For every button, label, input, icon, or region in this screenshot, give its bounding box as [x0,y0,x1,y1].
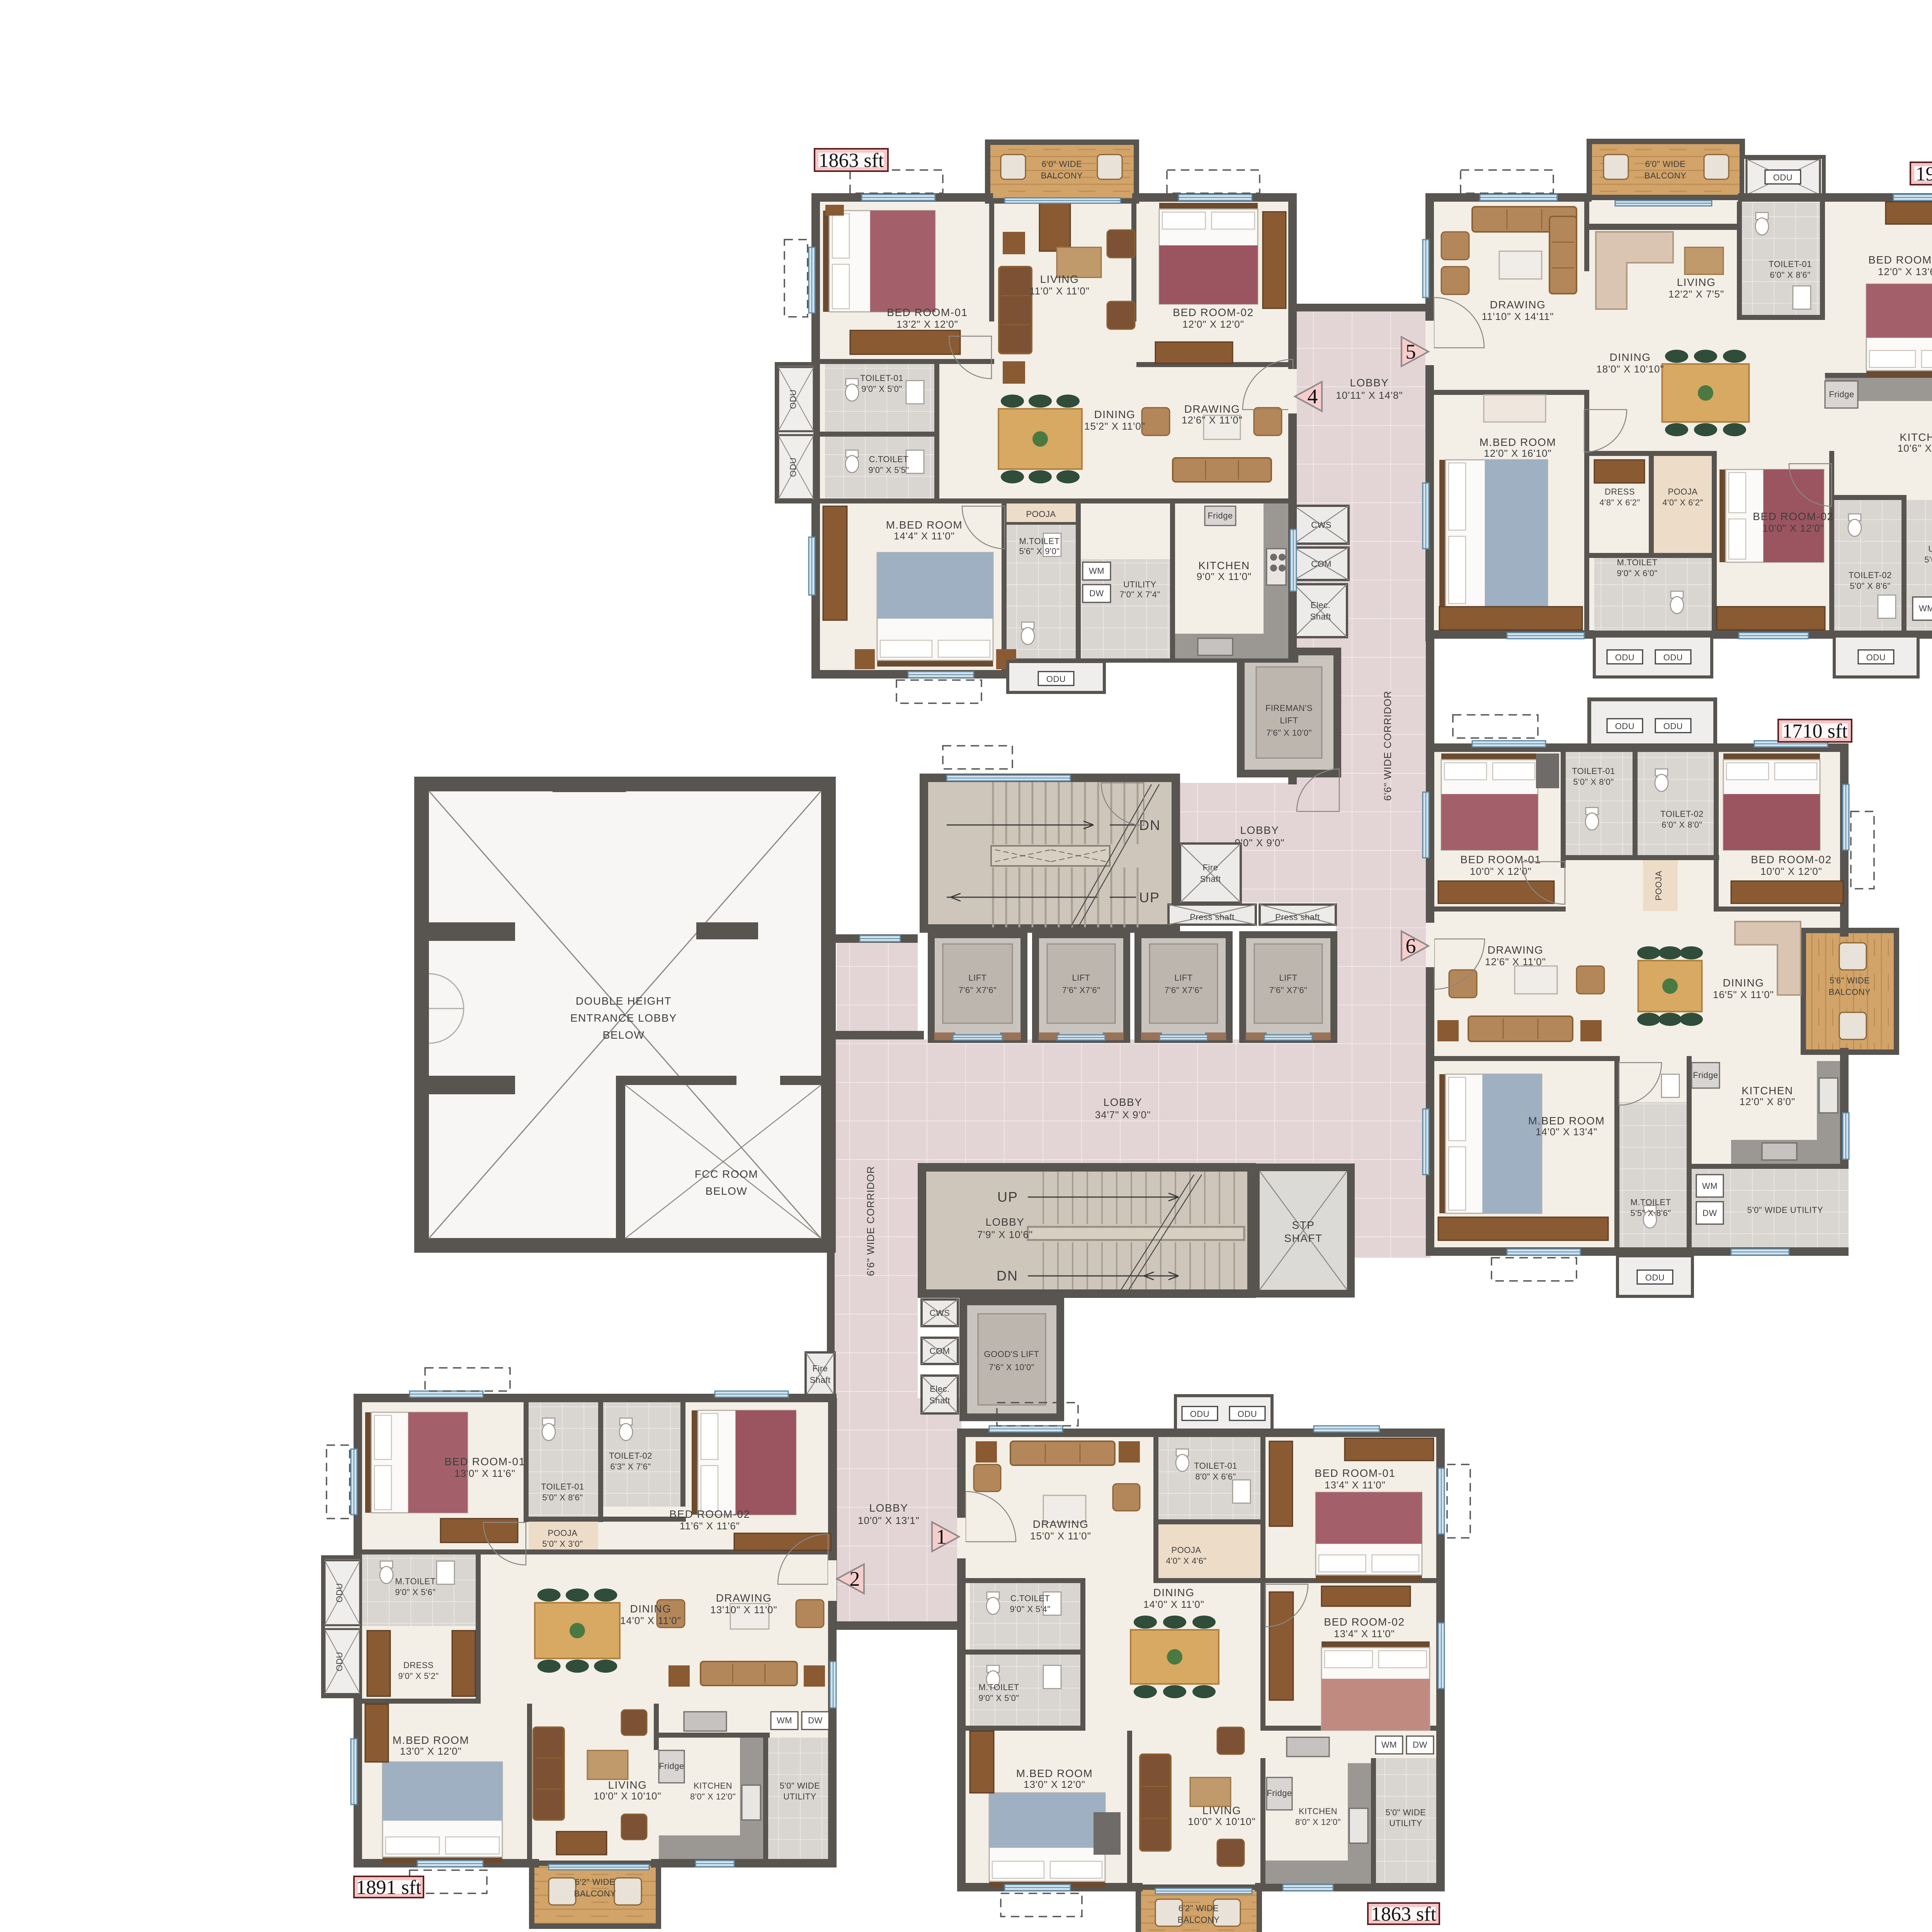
svg-text:LIVING: LIVING [1202,1804,1242,1816]
svg-text:CWS: CWS [930,1308,950,1318]
svg-text:LIVING: LIVING [1040,273,1079,285]
svg-text:M.BED ROOM: M.BED ROOM [886,519,963,531]
svg-text:6'2" WIDE: 6'2" WIDE [1179,1903,1219,1913]
svg-text:POOJA: POOJA [548,1528,577,1538]
svg-text:Fridge: Fridge [1207,511,1233,520]
svg-text:ODU: ODU [1866,653,1886,662]
svg-text:BALCONY: BALCONY [1829,987,1871,997]
svg-text:9'0" X 5'4": 9'0" X 5'4" [1010,1604,1050,1614]
svg-text:M.BED ROOM: M.BED ROOM [1016,1767,1093,1779]
svg-text:18'0" X 10'10": 18'0" X 10'10" [1596,363,1664,375]
svg-text:UTILITY: UTILITY [1389,1818,1422,1828]
svg-text:5'0" WIDE: 5'0" WIDE [1386,1808,1426,1817]
svg-text:DRESS: DRESS [1605,487,1635,497]
svg-text:13'4" X 11'0": 13'4" X 11'0" [1334,1628,1395,1639]
svg-text:BED ROOM-01: BED ROOM-01 [887,306,968,318]
svg-text:ODU: ODU [1663,721,1683,731]
svg-text:M.BED ROOM: M.BED ROOM [393,1734,469,1746]
svg-text:6'3" X 7'6": 6'3" X 7'6" [610,1462,651,1471]
svg-text:5: 5 [1406,340,1416,363]
svg-text:ODU: ODU [1645,1273,1665,1282]
svg-text:Fridge: Fridge [1267,1788,1292,1798]
svg-text:LOBBY: LOBBY [986,1216,1025,1228]
svg-text:BED ROOM-02: BED ROOM-02 [1751,854,1832,866]
svg-text:11'0" X 11'0": 11'0" X 11'0" [1029,285,1090,297]
svg-text:4'0" X 6'2": 4'0" X 6'2" [1662,498,1703,507]
svg-text:DW: DW [1702,1208,1717,1218]
svg-text:DRAWING: DRAWING [1488,944,1544,956]
svg-text:DRAWING: DRAWING [1490,299,1546,311]
svg-text:BELOW: BELOW [603,1029,645,1041]
svg-text:LIFT: LIFT [1279,973,1297,983]
svg-text:1891 sft: 1891 sft [356,1877,422,1899]
svg-text:DRESS: DRESS [403,1660,434,1670]
svg-text:13'0" X 11'6": 13'0" X 11'6" [454,1468,515,1479]
svg-text:BALCONY: BALCONY [1645,171,1687,180]
svg-text:Fridge: Fridge [1693,1070,1718,1080]
svg-text:Press shaft: Press shaft [1275,912,1320,922]
svg-text:6'0" X 8'6": 6'0" X 8'6" [1770,270,1810,280]
svg-text:ODU: ODU [335,1583,344,1602]
svg-text:6'2" WIDE: 6'2" WIDE [575,1877,616,1887]
svg-text:ODU: ODU [1663,653,1683,662]
svg-text:10'11" X 14'8": 10'11" X 14'8" [1336,389,1403,401]
svg-text:4: 4 [1308,385,1318,408]
svg-text:4'0" X 4'6": 4'0" X 4'6" [1166,1556,1206,1566]
svg-text:BED ROOM-02: BED ROOM-02 [1324,1616,1405,1628]
svg-text:15'0" X 11'0": 15'0" X 11'0" [1030,1530,1091,1542]
svg-text:UTILITY: UTILITY [1928,544,1932,554]
svg-text:14'0" X 11'0": 14'0" X 11'0" [620,1615,681,1626]
svg-text:9'0" X 5'0": 9'0" X 5'0" [861,384,902,394]
svg-text:UP: UP [1139,889,1160,905]
svg-text:11'10" X 14'11": 11'10" X 14'11" [1482,311,1554,322]
svg-text:DINING: DINING [1094,408,1136,420]
svg-text:Elec.: Elec. [1311,600,1330,610]
svg-text:11'6" X 11'6": 11'6" X 11'6" [680,1520,740,1532]
svg-text:LIVING: LIVING [1677,276,1716,288]
svg-text:5'0" WIDE: 5'0" WIDE [780,1781,820,1791]
svg-text:5'6" X 9'0": 5'6" X 9'0" [1019,546,1060,556]
svg-text:12'2" X 7'5": 12'2" X 7'5" [1668,288,1724,300]
svg-text:12'6" X 11'0": 12'6" X 11'0" [1485,956,1546,968]
svg-text:1990 sft: 1990 sft [1916,163,1932,185]
svg-text:6'0" WIDE: 6'0" WIDE [1645,159,1686,169]
svg-text:1: 1 [936,1525,947,1548]
svg-text:13'0" X 12'0": 13'0" X 12'0" [400,1745,462,1757]
svg-text:6: 6 [1406,934,1416,957]
svg-text:TOILET-01: TOILET-01 [860,373,903,383]
svg-text:10'0" X 12'0": 10'0" X 12'0" [1762,522,1824,534]
svg-text:7'6" X7'6": 7'6" X7'6" [959,985,997,995]
svg-text:10'0" X 13'1": 10'0" X 13'1" [858,1515,920,1526]
svg-text:TOILET-01: TOILET-01 [1572,766,1615,776]
svg-text:9'0" X 5'2": 9'0" X 5'2" [398,1671,439,1681]
svg-text:9'0" X 6'0": 9'0" X 6'0" [1617,568,1657,578]
svg-text:UTILITY: UTILITY [783,1792,816,1801]
svg-text:9'0" X 5'0": 9'0" X 5'0" [978,1693,1019,1703]
svg-text:KITCHEN: KITCHEN [1742,1085,1793,1097]
svg-text:M.TOILET: M.TOILET [978,1682,1019,1692]
svg-text:ENTRANCE LOBBY: ENTRANCE LOBBY [570,1012,677,1024]
svg-text:DOUBLE HEIGHT: DOUBLE HEIGHT [576,995,672,1007]
svg-text:POOJA: POOJA [1668,487,1697,497]
svg-text:C.TOILET: C.TOILET [869,454,909,464]
svg-text:BED ROOM-01: BED ROOM-01 [1460,854,1541,866]
svg-text:ODU: ODU [788,457,798,477]
svg-text:Shaft: Shaft [1310,612,1331,622]
svg-text:Shaft: Shaft [1200,874,1221,884]
svg-text:FIREMAN'S: FIREMAN'S [1265,703,1313,713]
svg-text:WM: WM [1089,566,1104,576]
svg-text:WM: WM [1381,1740,1397,1750]
svg-text:Fridge: Fridge [659,1761,684,1771]
svg-text:9'0" X 5'6": 9'0" X 5'6" [395,1587,435,1597]
svg-text:13'2" X 12'0": 13'2" X 12'0" [896,318,958,330]
svg-text:9'0" X 5'5": 9'0" X 5'5" [868,465,909,475]
svg-text:34'7" X 9'0": 34'7" X 9'0" [1095,1109,1151,1121]
svg-text:8'0" X 12'0": 8'0" X 12'0" [1295,1817,1341,1827]
svg-text:Shaft: Shaft [929,1396,950,1405]
svg-text:SHAFT: SHAFT [1284,1232,1322,1244]
svg-text:KITCHEN: KITCHEN [1299,1806,1337,1816]
svg-text:DINING: DINING [630,1603,672,1615]
svg-text:10'6" X 9'4": 10'6" X 9'4" [1898,442,1932,454]
svg-text:KITCHEN: KITCHEN [1900,431,1932,443]
svg-text:7'0" X 7'4": 7'0" X 7'4" [1119,590,1160,599]
svg-text:UTILITY: UTILITY [1123,580,1156,589]
svg-text:POOJA: POOJA [1171,1545,1201,1555]
svg-text:BED ROOM-01: BED ROOM-01 [1315,1467,1395,1479]
svg-text:TOILET-01: TOILET-01 [1769,259,1812,269]
svg-text:DW: DW [1089,588,1104,598]
svg-text:LIFT: LIFT [1174,973,1192,983]
svg-text:12'0" X 13'6": 12'0" X 13'6" [1878,266,1932,277]
svg-text:BALCONY: BALCONY [574,1889,616,1898]
svg-text:ODU: ODU [788,389,798,409]
svg-text:DW: DW [1413,1740,1427,1750]
svg-text:DN: DN [997,1268,1018,1284]
svg-text:CWS: CWS [1311,520,1332,530]
svg-text:6'0" WIDE: 6'0" WIDE [1042,159,1082,169]
svg-text:WM: WM [1919,604,1932,613]
svg-text:Fire: Fire [813,1364,828,1373]
svg-text:Fire: Fire [1203,863,1218,872]
svg-text:ODU: ODU [1238,1409,1257,1419]
svg-text:TOILET-02: TOILET-02 [609,1451,652,1461]
svg-text:BELOW: BELOW [706,1185,748,1197]
svg-text:LOBBY: LOBBY [869,1502,908,1514]
svg-text:5'0" X 3'0": 5'0" X 3'0" [542,1539,583,1549]
svg-text:WM: WM [777,1716,792,1725]
svg-text:POOJA: POOJA [1026,509,1056,519]
svg-text:6'6" WIDE CORRIDOR: 6'6" WIDE CORRIDOR [865,1166,876,1276]
svg-text:10'0" X 12'0": 10'0" X 12'0" [1760,866,1822,877]
svg-text:5'0" X 8'6": 5'0" X 8'6" [1924,555,1932,565]
svg-text:7'6" X7'6": 7'6" X7'6" [1165,985,1203,995]
svg-text:LOBBY: LOBBY [1104,1096,1143,1108]
svg-text:COM: COM [930,1346,950,1356]
svg-text:LOBBY: LOBBY [1240,824,1279,836]
svg-text:POOJA: POOJA [1654,871,1663,900]
svg-text:7'6" X7'6": 7'6" X7'6" [1269,985,1308,995]
svg-text:GOOD'S LIFT: GOOD'S LIFT [984,1349,1039,1359]
svg-text:13'0" X 12'0": 13'0" X 12'0" [1024,1779,1085,1790]
svg-text:DINING: DINING [1153,1587,1195,1599]
svg-text:6'6" WIDE CORRIDOR: 6'6" WIDE CORRIDOR [1382,691,1393,801]
svg-text:15'2" X 11'0": 15'2" X 11'0" [1084,420,1145,432]
svg-text:LIFT: LIFT [1280,716,1298,725]
svg-text:DINING: DINING [1610,351,1651,363]
svg-text:M.BED ROOM: M.BED ROOM [1528,1115,1605,1127]
svg-text:5'5" X 8'6": 5'5" X 8'6" [1630,1208,1671,1218]
svg-text:1710 sft: 1710 sft [1782,720,1848,742]
svg-text:12'6" X 11'0": 12'6" X 11'0" [1182,414,1243,426]
svg-text:8'0" X 6'6": 8'0" X 6'6" [1195,1472,1236,1481]
svg-text:5'0" X 8'6": 5'0" X 8'6" [1850,581,1890,591]
svg-text:10'0" X 10'10": 10'0" X 10'10" [1188,1816,1255,1827]
svg-text:7'6" X7'6": 7'6" X7'6" [1062,985,1100,995]
svg-text:1863 sft: 1863 sft [819,150,884,172]
svg-text:12'0" X 16'10": 12'0" X 16'10" [1484,447,1551,459]
svg-text:6'0" X 8'0": 6'0" X 8'0" [1662,820,1702,830]
svg-text:LIFT: LIFT [968,973,986,983]
svg-text:LOBBY: LOBBY [1350,377,1389,389]
svg-text:Elec.: Elec. [930,1384,949,1394]
svg-text:DRAWING: DRAWING [716,1592,772,1604]
svg-text:13'4" X 11'0": 13'4" X 11'0" [1325,1479,1386,1491]
svg-text:12'0" X 8'0": 12'0" X 8'0" [1740,1096,1795,1107]
svg-text:7'9" X 10'6": 7'9" X 10'6" [977,1229,1033,1240]
svg-text:Fridge: Fridge [1829,389,1854,399]
svg-text:1863 sft: 1863 sft [1371,1903,1437,1925]
svg-text:TOILET-02: TOILET-02 [1660,809,1704,819]
svg-text:Shaft: Shaft [810,1375,831,1385]
svg-text:Press shaft: Press shaft [1190,912,1235,922]
svg-text:7'6" X 10'0": 7'6" X 10'0" [1266,728,1312,738]
svg-text:STP: STP [1292,1219,1315,1231]
svg-text:DRAWING: DRAWING [1184,403,1240,415]
svg-text:FCC ROOM: FCC ROOM [695,1168,758,1180]
svg-text:4'8" X 6'2": 4'8" X 6'2" [1599,498,1640,507]
svg-text:14'0" X 13'4": 14'0" X 13'4" [1536,1126,1597,1138]
svg-text:BALCONY: BALCONY [1178,1915,1220,1925]
svg-text:KITCHEN: KITCHEN [694,1781,732,1791]
svg-text:14'0" X 11'0": 14'0" X 11'0" [1143,1599,1204,1610]
svg-text:C.TOILET: C.TOILET [1010,1594,1050,1603]
svg-text:BALCONY: BALCONY [1041,171,1083,180]
svg-text:M.BED ROOM: M.BED ROOM [1480,436,1556,448]
svg-text:BED ROOM-01: BED ROOM-01 [444,1456,525,1468]
svg-text:10'0" X 10'10": 10'0" X 10'10" [594,1790,661,1802]
svg-text:ODU: ODU [1615,721,1634,731]
svg-text:ODU: ODU [1190,1409,1209,1419]
svg-text:UP: UP [997,1189,1018,1205]
svg-text:KITCHEN: KITCHEN [1198,560,1250,571]
svg-text:12'0" X 12'0": 12'0" X 12'0" [1182,318,1244,330]
svg-text:BED ROOM-02: BED ROOM-02 [1753,510,1833,522]
svg-text:LIVING: LIVING [608,1779,647,1791]
svg-text:9'0" X 11'0": 9'0" X 11'0" [1197,571,1252,582]
svg-text:14'4" X 11'0": 14'4" X 11'0" [894,530,955,542]
svg-text:LIFT: LIFT [1072,973,1090,983]
svg-text:BED ROOM-02: BED ROOM-02 [669,1508,750,1520]
svg-text:5'0" X 8'6": 5'0" X 8'6" [542,1493,583,1502]
svg-text:5'6" WIDE: 5'6" WIDE [1830,976,1870,985]
svg-text:DINING: DINING [1723,977,1764,989]
svg-text:7'6" X 10'0": 7'6" X 10'0" [989,1362,1034,1372]
svg-text:BED ROOM-02: BED ROOM-02 [1173,306,1253,318]
svg-text:M.TOILET: M.TOILET [1019,536,1060,546]
svg-text:ODU: ODU [1046,674,1066,684]
svg-text:TOILET-01: TOILET-01 [1194,1461,1237,1471]
svg-text:13'10" X 11'0": 13'10" X 11'0" [710,1604,777,1616]
svg-text:M.TOILET: M.TOILET [395,1577,435,1586]
svg-text:TOILET-02: TOILET-02 [1849,570,1892,580]
svg-text:ODU: ODU [335,1652,344,1671]
svg-text:WM: WM [1702,1181,1718,1191]
svg-text:2: 2 [850,1567,860,1590]
svg-text:BED ROOM-01: BED ROOM-01 [1868,254,1932,266]
svg-text:M.TOILET: M.TOILET [1617,558,1657,567]
svg-text:ODU: ODU [1773,173,1793,182]
svg-text:9'0" X 9'0": 9'0" X 9'0" [1235,837,1284,849]
svg-text:5'0" WIDE UTILITY: 5'0" WIDE UTILITY [1747,1205,1823,1215]
svg-text:M.TOILET: M.TOILET [1630,1197,1671,1207]
svg-text:8'0" X 12'0": 8'0" X 12'0" [690,1792,736,1801]
svg-text:ODU: ODU [1615,653,1634,662]
svg-text:16'5" X 11'0": 16'5" X 11'0" [1713,989,1774,1000]
svg-text:5'0" X 8'0": 5'0" X 8'0" [1573,777,1614,787]
svg-text:COM: COM [1311,559,1332,569]
svg-text:DRAWING: DRAWING [1033,1518,1089,1530]
svg-text:DW: DW [808,1716,823,1725]
svg-text:TOILET-01: TOILET-01 [541,1482,584,1492]
